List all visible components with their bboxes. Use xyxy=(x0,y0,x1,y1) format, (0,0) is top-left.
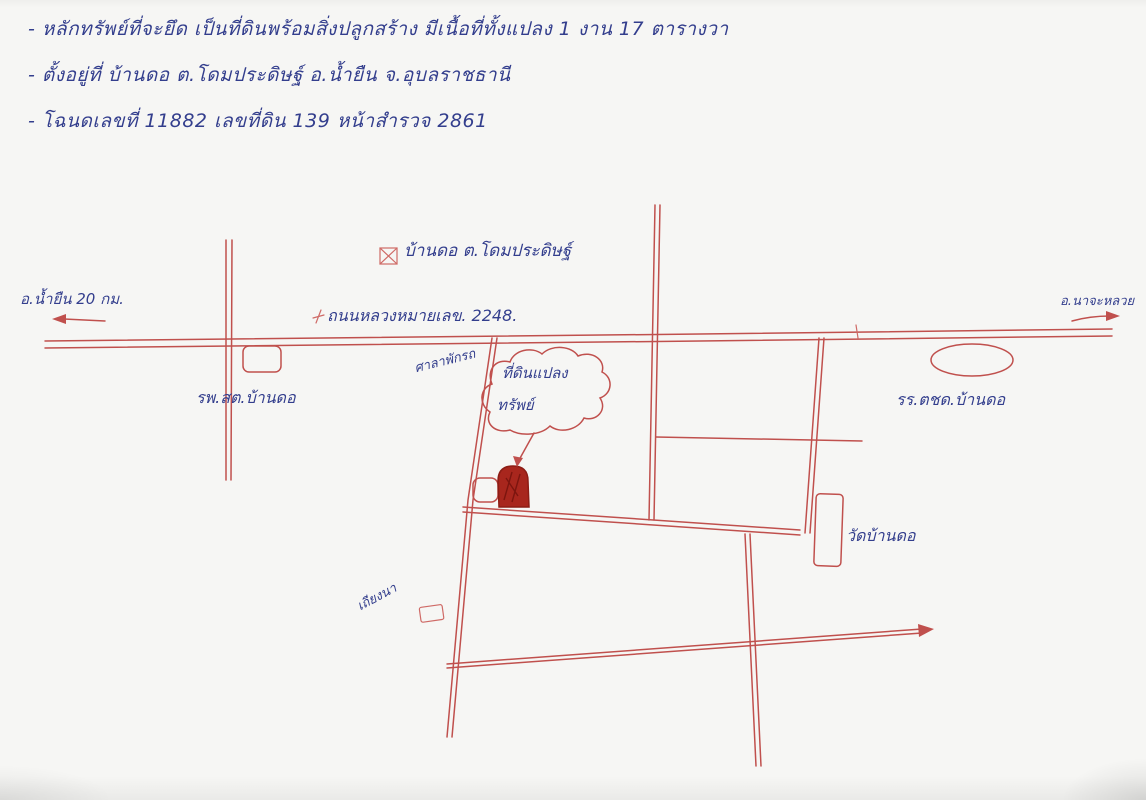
road-property-diagonal xyxy=(447,338,497,737)
scanned-map-page: - หลักทรัพย์ที่จะยึด เป็นที่ดินพร้อมสิ่ง… xyxy=(0,0,1146,800)
property-marker xyxy=(498,466,529,507)
highway-label-tick xyxy=(313,310,324,323)
school-oval xyxy=(931,344,1013,376)
field-hut-building xyxy=(419,604,444,622)
road-lower-horizontal xyxy=(463,507,800,535)
west-arrow-icon xyxy=(52,314,105,324)
cloud-label-line1: ที่ดินแปลง xyxy=(502,364,568,382)
temple-label: วัดบ้านดอ xyxy=(846,526,915,545)
health-center-building xyxy=(243,346,281,372)
road-bottom-arrow xyxy=(447,624,934,668)
road-connector-east xyxy=(656,437,862,441)
east-direction-label: อ.นาจะหลวย xyxy=(1060,294,1134,310)
neighbor-building xyxy=(473,478,498,502)
health-center-label: รพ.สต.บ้านดอ xyxy=(196,388,296,407)
note-line-3: - โฉนดเลขที่ 11882 เลขที่ดิน 139 หน้าสำร… xyxy=(28,110,488,133)
school-label: รร.ตชด.บ้านดอ xyxy=(896,390,1005,409)
road-main-highway xyxy=(45,329,1112,348)
village-marker-label: บ้านดอ ต.โดมประดิษฐ์ xyxy=(404,241,571,261)
village-marker-icon xyxy=(380,248,397,264)
road-bottom-vertical xyxy=(745,534,761,766)
east-arrow-icon xyxy=(1072,311,1120,321)
west-direction-label: อ.น้ำยืน 20 กม. xyxy=(20,290,124,308)
road-right-vertical xyxy=(805,338,824,533)
note-line-1: - หลักทรัพย์ที่จะยึด เป็นที่ดินพร้อมสิ่ง… xyxy=(28,18,729,41)
note-line-2: - ตั้งอยู่ที่ บ้านดอ ต.โดมประดิษฐ์ อ.น้ำ… xyxy=(28,64,511,87)
highway-label: ถนนหลวงหมายเลข. 2248. xyxy=(327,306,517,325)
cloud-label-line2: ทรัพย์ xyxy=(497,396,534,414)
road-left-vertical xyxy=(226,240,232,480)
road-center-vertical xyxy=(649,205,660,520)
temple-building xyxy=(814,494,843,567)
